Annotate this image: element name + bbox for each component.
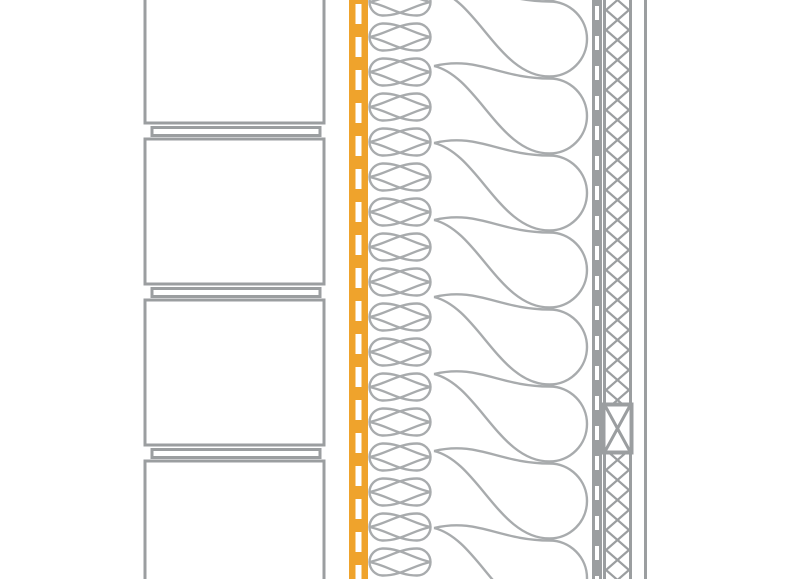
membrane-layer (592, 0, 602, 579)
insulation-outer-batt (434, 0, 587, 579)
block-joint-bar (152, 289, 320, 297)
ventilation-batten-lattice (603, 0, 632, 579)
insulation-loop (434, 525, 587, 579)
insulation-loop (434, 0, 587, 77)
masonry-block (145, 300, 324, 445)
insulation-loop (370, 0, 431, 16)
wall-section-diagram (0, 0, 800, 579)
insulation-loop (370, 129, 431, 156)
block-joint-bar (152, 450, 320, 458)
wall-section-drawing (0, 0, 800, 579)
insulation-loop (370, 304, 431, 331)
insulation-loop (370, 549, 431, 576)
insulation-loop (370, 444, 431, 471)
insulation-loop (370, 59, 431, 86)
insulation-loop (370, 94, 431, 121)
masonry-block (145, 461, 324, 579)
cladding-face-line (644, 0, 647, 579)
insulation-loop (370, 199, 431, 226)
insulation-loop (370, 374, 431, 401)
insulation-loop (370, 269, 431, 296)
insulation-loop (370, 339, 431, 366)
lattice-rail-left (603, 0, 606, 579)
masonry-block-wall (145, 0, 324, 579)
block-joint-bar (152, 128, 320, 136)
insulation-inner-batt (370, 0, 431, 579)
insulation-loop (370, 24, 431, 51)
insulation-loop (370, 514, 431, 541)
cladding-line (644, 0, 647, 579)
masonry-block (145, 0, 324, 123)
insulation-loop (370, 409, 431, 436)
insulation-loop (370, 479, 431, 506)
insulation-loop (370, 234, 431, 261)
adhesive-layer (349, 0, 368, 579)
masonry-block (145, 139, 324, 284)
lattice-rail-right (629, 0, 632, 579)
lattice-zigzag (606, 0, 629, 579)
insulation-loop (370, 164, 431, 191)
